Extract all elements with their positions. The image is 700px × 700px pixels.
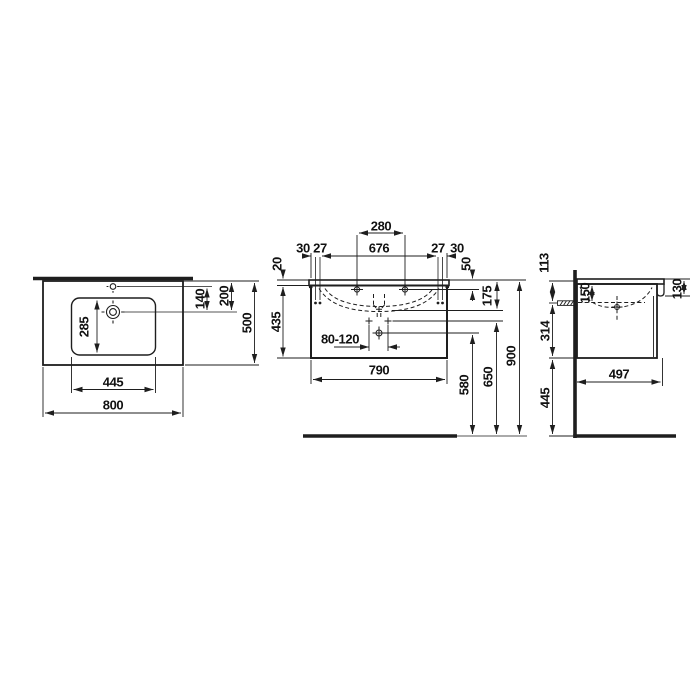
- dim-label-front-edge-height: 130: [671, 279, 684, 300]
- front-view-dimensions: [277, 233, 526, 434]
- dim-label-cabinet-height: 435: [270, 312, 283, 333]
- dim-label-offset-27-left: 27: [313, 242, 327, 255]
- dim-label-top-to-fixing: 50: [460, 257, 473, 271]
- dim-label-fixing-inset: 150: [579, 283, 592, 304]
- dim-label-bowl-width: 445: [103, 376, 124, 389]
- dim-label-worktop-thickness: 20: [271, 257, 284, 271]
- hidden-bowl-outline: [319, 289, 439, 320]
- dim-label-offset-30-right: 30: [450, 242, 464, 255]
- dim-label-offset-30-left: 30: [296, 242, 310, 255]
- dim-label-cabinet-width: 790: [369, 364, 390, 377]
- dim-label-fixing-span: 676: [369, 242, 390, 255]
- wall-screw-icon: [558, 301, 575, 306]
- dim-label-tap-spacing: 280: [371, 220, 392, 233]
- dim-label-offset-27-right: 27: [431, 242, 445, 255]
- drawing-linework: [0, 0, 700, 700]
- dim-label-drain-range: 80-120: [321, 333, 359, 346]
- dim-label-overall-depth: 500: [241, 313, 254, 334]
- dim-label-overall-width: 800: [103, 399, 124, 412]
- dim-label-floor-to-drain: 580: [458, 375, 471, 396]
- drain-position-icon: [612, 302, 623, 313]
- basin-front-edge: [657, 284, 664, 296]
- dim-label-bowl-depth: 285: [78, 317, 91, 338]
- dim-label-total-height: 900: [505, 346, 518, 367]
- cabinet-outline: [311, 286, 447, 359]
- dim-label-side-fixing-top: 113: [538, 253, 551, 273]
- dim-label-floor-to-trap: 650: [482, 367, 495, 388]
- dim-label-bowl-bottom: 175: [481, 286, 494, 307]
- dim-label-tap-to-drain: 140: [194, 289, 207, 310]
- front-view: [277, 233, 527, 436]
- technical-drawing: 285 140 200 500 445 800 280 30 27 676 27…: [0, 0, 700, 700]
- dim-label-bottom-to-floor: 445: [539, 388, 552, 409]
- dim-label-back-to-drain: 200: [218, 286, 231, 307]
- dim-label-fixing-to-bottom: 314: [539, 321, 552, 342]
- dim-label-total-depth: 497: [609, 368, 630, 381]
